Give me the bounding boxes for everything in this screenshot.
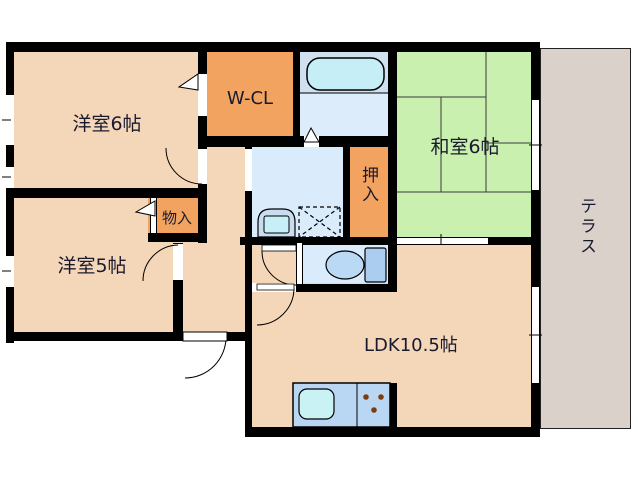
hallway-lower — [173, 237, 252, 341]
room-ldk-west — [245, 283, 397, 437]
wall-wcl-bath-divider — [293, 42, 300, 147]
wall-toilet-bottom — [296, 284, 397, 292]
wall-west6-bottom — [6, 188, 207, 198]
window-west5-left — [6, 256, 14, 287]
door-west6-entry — [198, 148, 207, 185]
floor-plan: 洋室6帖 W-CL 和室6帖 押入 物入 洋室5帖 LDK10.5帖 テラス — [0, 0, 638, 480]
label-japanese6: 和室6帖 — [400, 132, 530, 159]
wall-kitchen-stub — [388, 383, 397, 437]
door-bathroom-gap — [304, 136, 319, 147]
wall-west5-bottom — [6, 332, 183, 341]
label-terrace: テラス — [574, 197, 599, 257]
door-west5-entry — [173, 243, 183, 281]
door-ldk-gap — [252, 283, 296, 292]
arc-entrance-door — [185, 337, 226, 378]
door-washroom-sliding — [245, 148, 252, 192]
wall-toilet-top — [240, 237, 397, 245]
window-ldk-right — [532, 287, 539, 383]
fusuma-washitsu-ldk — [397, 237, 488, 245]
label-wcl: W-CL — [206, 88, 294, 109]
wall-washroom-oshiire — [343, 147, 350, 245]
window-japanese6-right — [532, 100, 539, 190]
label-ldk: LDK10.5帖 — [364, 331, 458, 357]
wall-washitsu-ldk — [488, 237, 533, 245]
window-west6-left-upper — [6, 95, 14, 145]
door-toilet — [296, 243, 303, 284]
label-oshiire: 押入 — [356, 166, 381, 204]
wall-bath-washitsu-divider — [388, 42, 397, 292]
label-western5: 洋室5帖 — [27, 251, 157, 278]
label-western6: 洋室6帖 — [42, 109, 172, 136]
room-washroom — [245, 136, 350, 245]
label-monoire: 物入 — [153, 207, 201, 228]
wall-outer-top — [6, 42, 540, 52]
window-west6-left-lower — [6, 167, 14, 188]
